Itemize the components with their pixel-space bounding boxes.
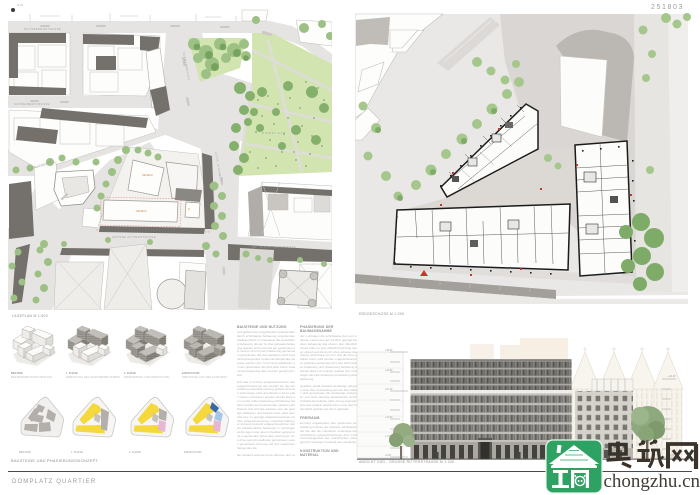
- svg-text:+0.00: +0.00: [385, 454, 392, 457]
- svg-text:ENDZUSTAND: ENDZUSTAND: [182, 371, 200, 375]
- svg-text:ROTHEBORNSTRASSE: ROTHEBORNSTRASSE: [24, 28, 61, 31]
- svg-text:+22.40: +22.40: [668, 375, 676, 378]
- svg-text:1. PHASE: 1. PHASE: [66, 371, 78, 375]
- svg-text:chongzhu.cn: chongzhu.cn: [604, 471, 700, 492]
- svg-text:BESTAND: BESTAND: [19, 450, 31, 454]
- svg-text:+27.10: +27.10: [385, 388, 393, 391]
- svg-text:GROSSE RITTERSTRASSE: GROSSE RITTERSTRASSE: [112, 236, 156, 239]
- svg-text:N: N: [188, 207, 190, 211]
- svg-text:ERRICHTUNG DES QUARTIERSBAUSTE: ERRICHTUNG DES QUARTIERSBAUSTEINS: [66, 375, 120, 379]
- svg-text:+14.60: +14.60: [385, 416, 393, 419]
- svg-text:+31.80: +31.80: [385, 369, 393, 372]
- svg-text:DOMPLATZ: DOMPLATZ: [262, 131, 286, 135]
- svg-text:BESTEHENDE STADTSTRUKTUR: BESTEHENDE STADTSTRUKTUR: [11, 375, 52, 379]
- svg-text:NEUBAU: NEUBAU: [142, 173, 153, 177]
- svg-text:SCHREIBERSTRASSE: SCHREIBERSTRASSE: [14, 103, 50, 106]
- svg-text:+38.30: +38.30: [385, 349, 393, 352]
- svg-text:2. PHASE: 2. PHASE: [129, 450, 141, 454]
- svg-text:ENDZUSTAND: ENDZUSTAND: [184, 450, 202, 454]
- svg-text:BESTAND: BESTAND: [11, 371, 23, 375]
- svg-text:+7.20: +7.20: [385, 435, 392, 438]
- svg-text:ERWEITERUNG UND VERDICHTUNG: ERWEITERUNG UND VERDICHTUNG: [124, 375, 170, 379]
- svg-text:2. PHASE: 2. PHASE: [124, 371, 136, 375]
- svg-text:1. PHASE: 1. PHASE: [71, 450, 83, 454]
- svg-text:FERTIGSTELLUNG DES QUARTIERS: FERTIGSTELLUNG DES QUARTIERS: [182, 375, 227, 379]
- svg-text:NEUBAU: NEUBAU: [136, 209, 147, 213]
- svg-text:BEI DER RITTERSTRASSE: BEI DER RITTERSTRASSE: [252, 246, 296, 249]
